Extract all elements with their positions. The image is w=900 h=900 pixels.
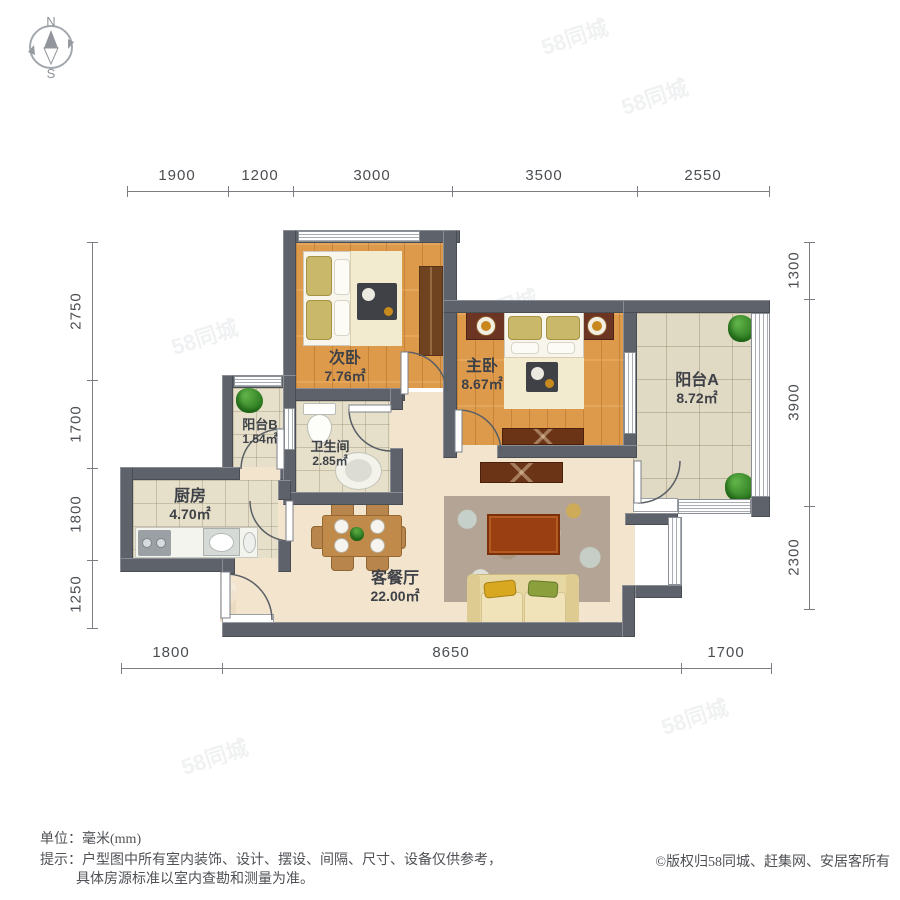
footer-tip-line2: 具体房源标准以室内查勘和测量为准。	[76, 868, 314, 888]
dimension-value: 1800	[68, 495, 85, 532]
room-label-kitchen: 厨房 4.70㎡	[169, 488, 210, 522]
unit-label: 单位：	[40, 832, 82, 847]
room-name: 厨房	[169, 488, 210, 506]
dimension-tick	[87, 380, 98, 381]
door-leaf	[634, 461, 641, 503]
dimension-value: 3000	[353, 167, 390, 184]
dimension-value: 1900	[158, 167, 195, 184]
room-area: 4.70㎡	[169, 506, 210, 522]
room-label-living-dining: 客餐厅 22.00㎡	[370, 570, 419, 604]
dimension-tick	[771, 663, 772, 674]
dimension-tick	[127, 186, 128, 197]
room-area: 7.76㎡	[324, 368, 365, 384]
dimension-value: 8650	[432, 644, 469, 661]
footer-copyright: ©版权归58同城、赶集网、安居客所有	[655, 851, 890, 871]
room-label-balcony-a: 阳台A 8.72㎡	[675, 372, 719, 406]
door-leaf	[277, 429, 284, 469]
dimension-value: 3900	[786, 383, 803, 420]
room-name: 客餐厅	[370, 570, 419, 588]
secondary-bedroom-door-arc	[405, 352, 447, 394]
room-area: 2.85㎡	[310, 455, 349, 469]
dimension-tick	[804, 242, 815, 243]
room-area: 8.67㎡	[461, 376, 502, 392]
dimension-value: 2750	[68, 292, 85, 329]
footer-unit-line: 单位：毫米(mm)	[40, 828, 141, 848]
dimension-tick	[804, 506, 815, 507]
room-name: 主卧	[461, 358, 502, 376]
bathroom-door-arc	[349, 409, 391, 451]
footer-tip-line1: 提示：户型图中所有室内装饰、设计、摆设、间隔、尺寸、设备仅供参考，	[40, 849, 502, 869]
tip-text-1: 户型图中所有室内装饰、设计、摆设、间隔、尺寸、设备仅供参考，	[82, 853, 502, 868]
dimension-value: 3500	[525, 167, 562, 184]
dimension-value: 1250	[68, 575, 85, 612]
door-leaf	[349, 405, 391, 412]
floorplan-page: { "compass": { "north": "N", "south": "S…	[0, 0, 900, 900]
tip-label: 提示：	[40, 853, 82, 868]
dimension-line-right	[809, 242, 810, 609]
dimension-line-left	[92, 242, 93, 628]
balcony-a-door-arc	[638, 461, 680, 503]
dimension-value: 1800	[152, 644, 189, 661]
dimension-value: 1700	[707, 644, 744, 661]
room-label-master-bedroom: 主卧 8.67㎡	[461, 358, 502, 392]
dimension-tick	[121, 663, 122, 674]
tip-text-2: 具体房源标准以室内查勘和测量为准。	[76, 872, 314, 887]
room-area: 22.00㎡	[370, 588, 419, 604]
dimension-tick	[87, 560, 98, 561]
dimension-tick	[228, 186, 229, 197]
door-leaves	[221, 352, 641, 618]
room-label-balcony-b: 阳台B 1.54㎡	[242, 418, 277, 447]
room-name: 卫生间	[310, 440, 349, 455]
room-label-bathroom: 卫生间 2.85㎡	[310, 440, 349, 469]
kitchen-door-arc	[250, 501, 290, 541]
unit-value: 毫米(mm)	[82, 832, 141, 847]
dimension-value: 1300	[786, 251, 803, 288]
dimension-tick	[804, 609, 815, 610]
dimension-tick	[222, 663, 223, 674]
room-name: 阳台A	[675, 372, 719, 390]
room-label-secondary-bedroom: 次卧 7.76㎡	[324, 350, 365, 384]
room-name: 阳台B	[242, 418, 277, 433]
dimension-line-bottom	[121, 668, 772, 669]
room-area: 1.54㎡	[242, 433, 277, 447]
dimension-tick	[769, 186, 770, 197]
dimension-tick	[452, 186, 453, 197]
entry-door-arc	[226, 574, 272, 620]
door-leaf	[401, 352, 408, 394]
door-arcs-layer	[0, 0, 900, 900]
dimension-tick	[87, 468, 98, 469]
door-arcs	[226, 352, 680, 620]
master-bedroom-door-arc	[459, 410, 501, 452]
dimension-value: 1700	[68, 405, 85, 442]
door-leaf	[286, 501, 293, 541]
dimension-value: 2550	[684, 167, 721, 184]
room-name: 次卧	[324, 350, 365, 368]
dimension-tick	[87, 242, 98, 243]
dimension-tick	[637, 186, 638, 197]
door-leaf	[455, 410, 462, 452]
dimension-value: 2300	[786, 538, 803, 575]
dimension-tick	[681, 663, 682, 674]
dimension-tick	[87, 628, 98, 629]
dimension-tick	[804, 299, 815, 300]
dimension-value: 1200	[241, 167, 278, 184]
entry-door-leaf	[221, 572, 230, 618]
dimension-tick	[293, 186, 294, 197]
room-area: 8.72㎡	[675, 390, 719, 406]
dimension-line-top	[127, 191, 770, 192]
